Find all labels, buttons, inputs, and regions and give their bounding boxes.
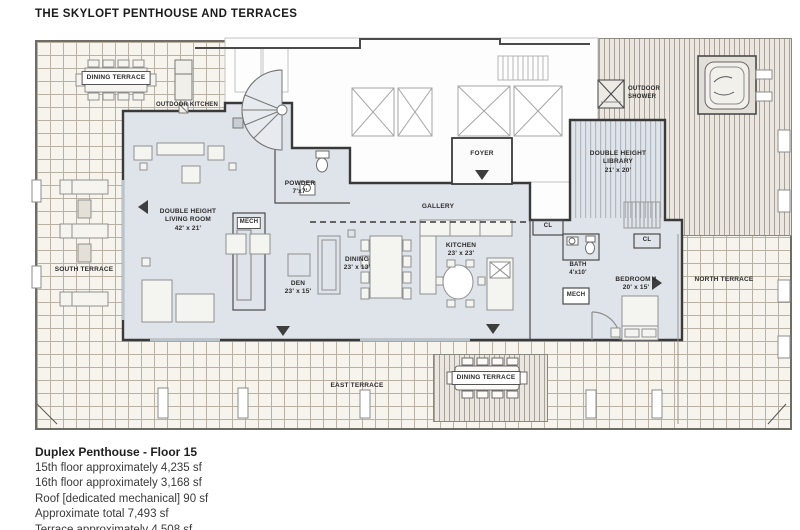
label-text: NORTH TERRACE	[695, 276, 754, 283]
terrace-label-dining-bottom: DINING TERRACE	[452, 371, 521, 385]
label-dims: 23' x 23'	[446, 250, 476, 258]
summary-heading: Duplex Penthouse - Floor 15	[35, 445, 208, 461]
label-text: BATH	[569, 262, 586, 270]
room-label-bath: BATH 4'x10'	[569, 262, 586, 278]
label-text: SHOWER	[628, 94, 660, 102]
terrace-label-dining-top: DINING TERRACE	[82, 71, 151, 85]
label-text: DINING	[344, 256, 371, 264]
floor-plan-drawing	[30, 30, 795, 430]
summary-line: 16th floor approximately 3,168 sf	[35, 476, 208, 492]
label-text: FOYER	[470, 150, 493, 157]
label-dims: 23' x 13'	[344, 264, 371, 272]
room-label-living: DOUBLE HEIGHT LIVING ROOM 42' x 21'	[160, 208, 216, 233]
room-label-gallery: GALLERY	[422, 203, 454, 211]
summary-line: Roof [dedicated mechanical] 90 sf	[35, 492, 208, 508]
hot-tub-icon	[698, 56, 772, 114]
label-text: CL	[643, 237, 651, 243]
room-label-mech-right: MECH	[567, 292, 585, 300]
terrace-label-east: EAST TERRACE	[331, 382, 384, 390]
room-label-dining: DINING 23' x 13'	[344, 256, 371, 273]
room-label-closet-bedroom: CL	[643, 237, 651, 245]
label-text: POWDER	[285, 180, 315, 188]
room-label-kitchen: KITCHEN 23' x 23'	[446, 242, 476, 259]
label-text: DOUBLE HEIGHT	[590, 150, 646, 158]
terrace-label-south: SOUTH TERRACE	[55, 266, 114, 274]
terrace-label-outdoor-kitchen: OUTDOOR KITCHEN	[156, 102, 218, 110]
label-dims: 7'x7'	[285, 188, 315, 196]
room-label-foyer: FOYER	[470, 150, 493, 158]
label-dims: 4'x10'	[569, 270, 586, 278]
outdoor-shower-icon	[598, 80, 624, 108]
summary-line: 15th floor approximately 4,235 sf	[35, 461, 208, 477]
floor-plan: DINING TERRACE OUTDOOR KITCHEN SOUTH TER…	[30, 30, 795, 430]
label-dims: 21' x 20'	[590, 167, 646, 175]
area-summary: Duplex Penthouse - Floor 15 15th floor a…	[35, 445, 208, 530]
label-text: GALLERY	[422, 203, 454, 210]
label-text: LIVING ROOM	[160, 216, 216, 224]
room-label-mech-left: MECH	[237, 217, 261, 229]
label-text: MECH	[567, 292, 585, 298]
label-text: LIBRARY	[590, 158, 646, 166]
label-text: BEDROOM 4	[615, 276, 656, 284]
terrace-label-north: NORTH TERRACE	[695, 276, 754, 284]
room-label-powder: POWDER 7'x7'	[285, 180, 315, 197]
label-dims: 20' x 15'	[615, 284, 656, 292]
room-label-bedroom4: BEDROOM 4 20' x 15'	[615, 276, 656, 293]
page-title: THE SKYLOFT PENTHOUSE AND TERRACES	[35, 8, 297, 20]
label-dims: 23' x 15'	[285, 288, 312, 296]
summary-line: Terrace approximately 4,508 sf	[35, 523, 208, 530]
label-text: SOUTH TERRACE	[55, 266, 114, 273]
label-text: CL	[544, 223, 552, 229]
page: THE SKYLOFT PENTHOUSE AND TERRACES	[0, 0, 800, 530]
label-text: MECH	[240, 219, 258, 225]
south-terrace-loungers	[60, 180, 108, 306]
room-label-closet-foyer: CL	[544, 223, 552, 231]
label-text: DINING TERRACE	[87, 74, 146, 81]
label-text: OUTDOOR KITCHEN	[156, 102, 218, 108]
label-text: DOUBLE HEIGHT	[160, 208, 216, 216]
label-text: DEN	[285, 280, 312, 288]
label-dims: 42' x 21'	[160, 225, 216, 233]
label-text: OUTDOOR	[628, 86, 660, 94]
room-label-den: DEN 23' x 15'	[285, 280, 312, 297]
room-label-library: DOUBLE HEIGHT LIBRARY 21' x 20'	[590, 150, 646, 175]
summary-line: Approximate total 7,493 sf	[35, 507, 208, 523]
label-outdoor-shower: OUTDOOR SHOWER	[628, 86, 660, 102]
label-text: KITCHEN	[446, 242, 476, 250]
label-text: EAST TERRACE	[331, 382, 384, 389]
label-text: DINING TERRACE	[457, 374, 516, 381]
